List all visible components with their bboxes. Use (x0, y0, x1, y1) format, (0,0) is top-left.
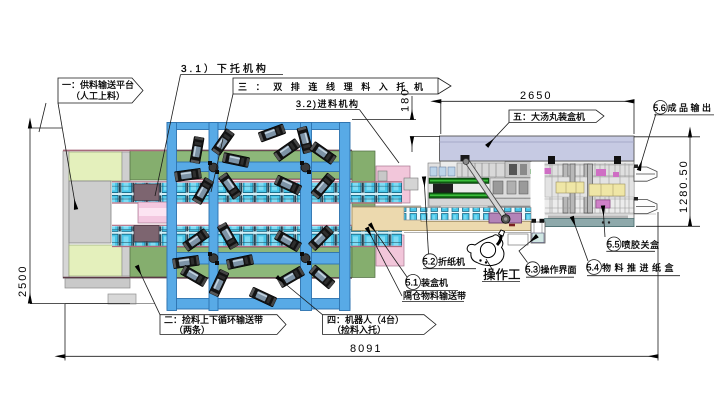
svg-text:2650: 2650 (520, 90, 552, 102)
svg-text:一：供料输送平台: 一：供料输送平台 (62, 79, 134, 90)
svg-text:5.1: 5.1 (406, 278, 419, 288)
svg-text:1280.50: 1280.50 (678, 159, 690, 213)
svg-text:5.5: 5.5 (607, 240, 620, 250)
svg-text:5.2: 5.2 (423, 257, 436, 267)
svg-text:5.4: 5.4 (587, 263, 600, 273)
svg-text:装盒机: 装盒机 (421, 277, 448, 288)
svg-text:2500: 2500 (17, 265, 29, 297)
svg-text:5.3: 5.3 (526, 265, 539, 275)
svg-text:喷胶关盒: 喷胶关盒 (622, 239, 660, 250)
svg-text:三：双排连线理料入托机: 三：双排连线理料入托机 (238, 81, 432, 92)
svg-text:3.1）下托机构: 3.1）下托机构 (181, 62, 269, 75)
svg-text:操作界面: 操作界面 (541, 264, 577, 275)
svg-text:（人工上料）: （人工上料） (71, 90, 125, 101)
svg-text:四：机器人（4台）: 四：机器人（4台） (327, 314, 404, 325)
svg-text:折纸机: 折纸机 (438, 256, 465, 267)
svg-text:8091: 8091 (350, 343, 382, 355)
svg-text:成品输出: 成品输出 (668, 102, 714, 113)
svg-text:五：大汤丸装盒机: 五：大汤丸装盒机 (513, 111, 585, 122)
svg-text:5.6: 5.6 (653, 103, 666, 113)
svg-text:隔仓物料输送带: 隔仓物料输送带 (403, 290, 466, 301)
svg-text:（捡料入托）: （捡料入托） (332, 324, 386, 335)
svg-text:操作工: 操作工 (483, 267, 521, 282)
svg-text:（两条）: （两条） (174, 324, 210, 335)
svg-text:二：捡料上下循环输送带: 二：捡料上下循环输送带 (164, 314, 263, 325)
svg-text:3.2)进料机构: 3.2)进料机构 (296, 98, 360, 109)
svg-text:物料推进纸盒: 物料推进纸盒 (602, 262, 677, 273)
